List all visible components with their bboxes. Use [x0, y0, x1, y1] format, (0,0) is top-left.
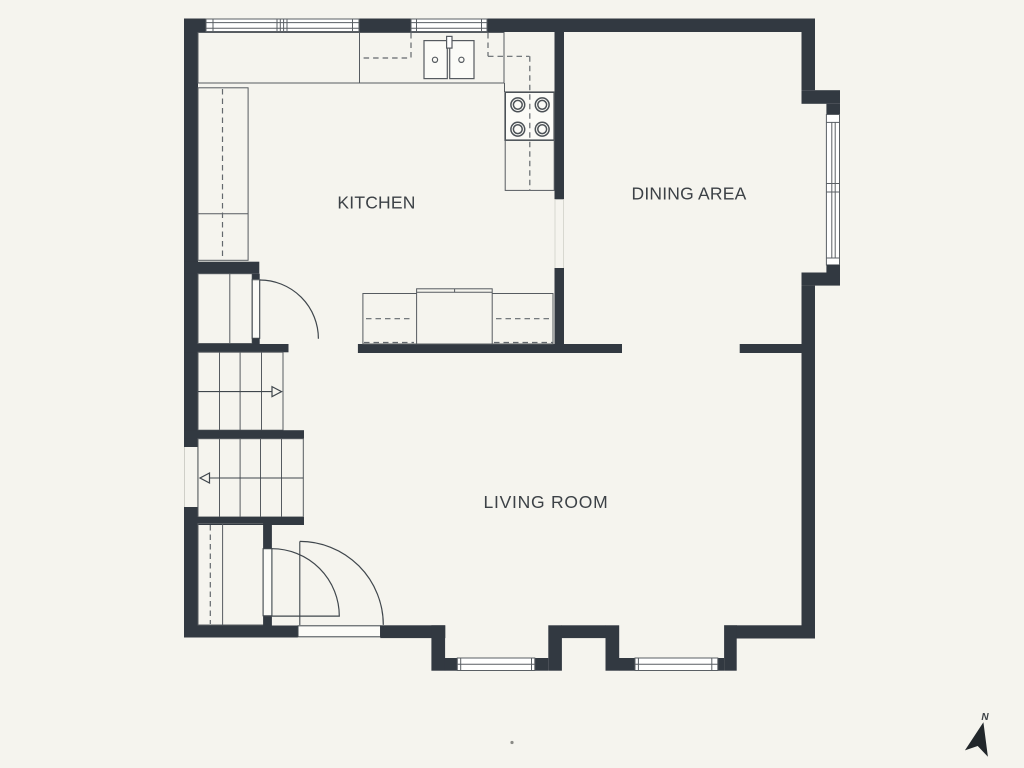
svg-text:DINING AREA: DINING AREA	[631, 184, 746, 204]
svg-text:N: N	[981, 712, 989, 723]
svg-text:KITCHEN: KITCHEN	[337, 193, 415, 213]
svg-text:LIVING ROOM: LIVING ROOM	[484, 492, 609, 512]
